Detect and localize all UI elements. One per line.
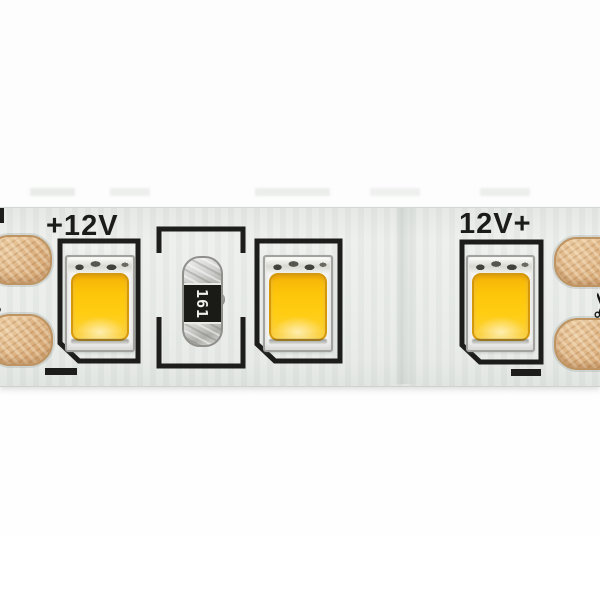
led3-phosphor [472, 273, 530, 341]
led1-electrode-band [68, 258, 132, 273]
led-package-1 [65, 255, 135, 352]
resistor-marking-band: 161 [183, 283, 222, 324]
led1-phosphor [71, 273, 129, 341]
led2-lens-shadow [269, 339, 327, 344]
led-strip-photo: ✂ ✂ +12V 12V+ 161 [0, 0, 600, 600]
copper-pad-left-bottom [0, 314, 53, 366]
copper-pad-right-top [554, 237, 600, 287]
copper-pad-right-bottom [554, 318, 600, 370]
resistor-marking-text: 161 [194, 288, 212, 318]
copper-pad-left-top [0, 235, 52, 285]
left-edge-silkscreen-tick [0, 208, 4, 223]
smd-resistor: 161 [182, 256, 223, 347]
led3-electrode-band [469, 258, 532, 273]
led2-electrode-band [266, 258, 330, 273]
led-package-3 [466, 255, 535, 352]
voltage-label-left: +12V [46, 210, 119, 243]
led1-lens-shadow [71, 339, 129, 344]
scissors-cut-icon-right: ✂ [586, 291, 600, 320]
pcb-segment-seam [394, 208, 418, 384]
led3-lens-shadow [472, 339, 529, 344]
voltage-label-right: 12V+ [459, 208, 532, 241]
photo-reflection-smudges [0, 188, 600, 196]
scissors-cut-icon-left: ✂ [0, 286, 11, 315]
led-package-2 [263, 255, 333, 352]
led2-phosphor [269, 273, 327, 341]
